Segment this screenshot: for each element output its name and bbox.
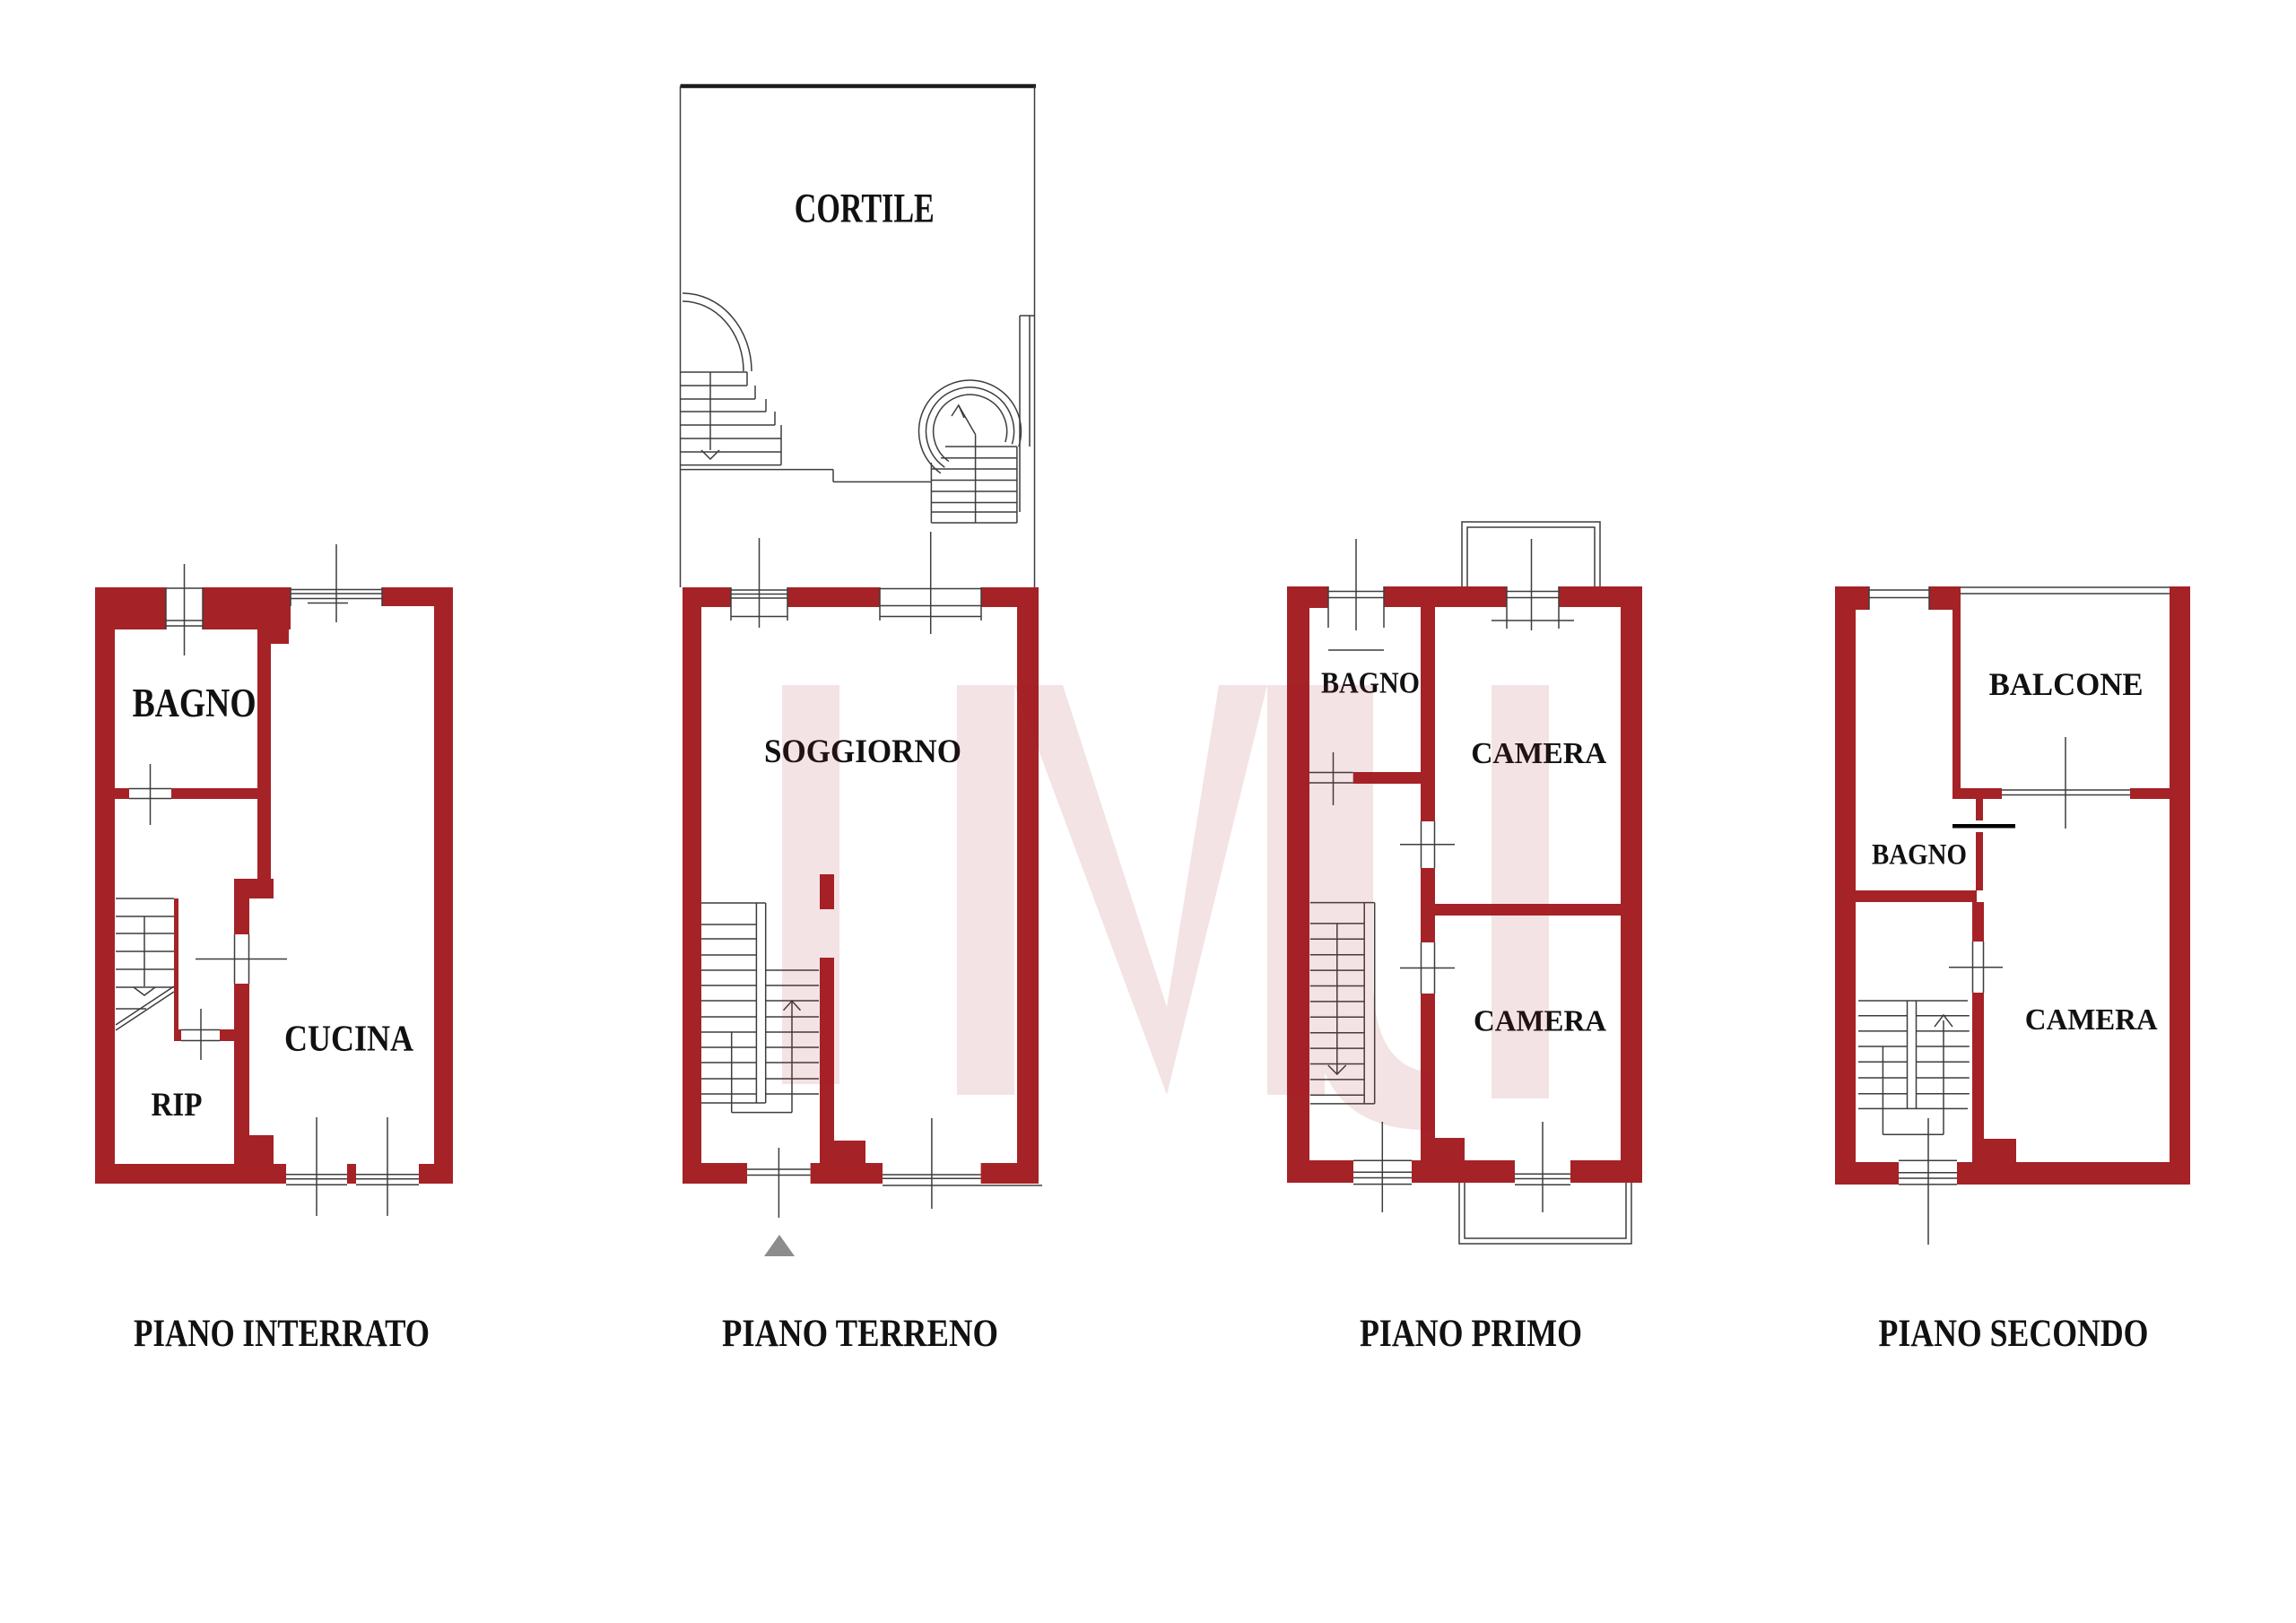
svg-text:CAMERA: CAMERA [2025, 1003, 2158, 1037]
svg-text:BAGNO: BAGNO [133, 681, 257, 725]
svg-text:PIANO TERRENO: PIANO TERRENO [722, 1313, 998, 1355]
svg-text:PIANO INTERRATO: PIANO INTERRATO [134, 1313, 430, 1355]
svg-text:BAGNO: BAGNO [1872, 839, 1967, 872]
svg-text:RIP: RIP [152, 1087, 203, 1124]
svg-text:CUCINA: CUCINA [284, 1018, 413, 1059]
svg-text:BALCONE: BALCONE [1989, 666, 2144, 702]
svg-text:PIANO SECONDO: PIANO SECONDO [1879, 1313, 2149, 1355]
svg-text:PIANO PRIMO: PIANO PRIMO [1360, 1313, 1582, 1355]
svg-text:CORTILE: CORTILE [795, 186, 935, 232]
